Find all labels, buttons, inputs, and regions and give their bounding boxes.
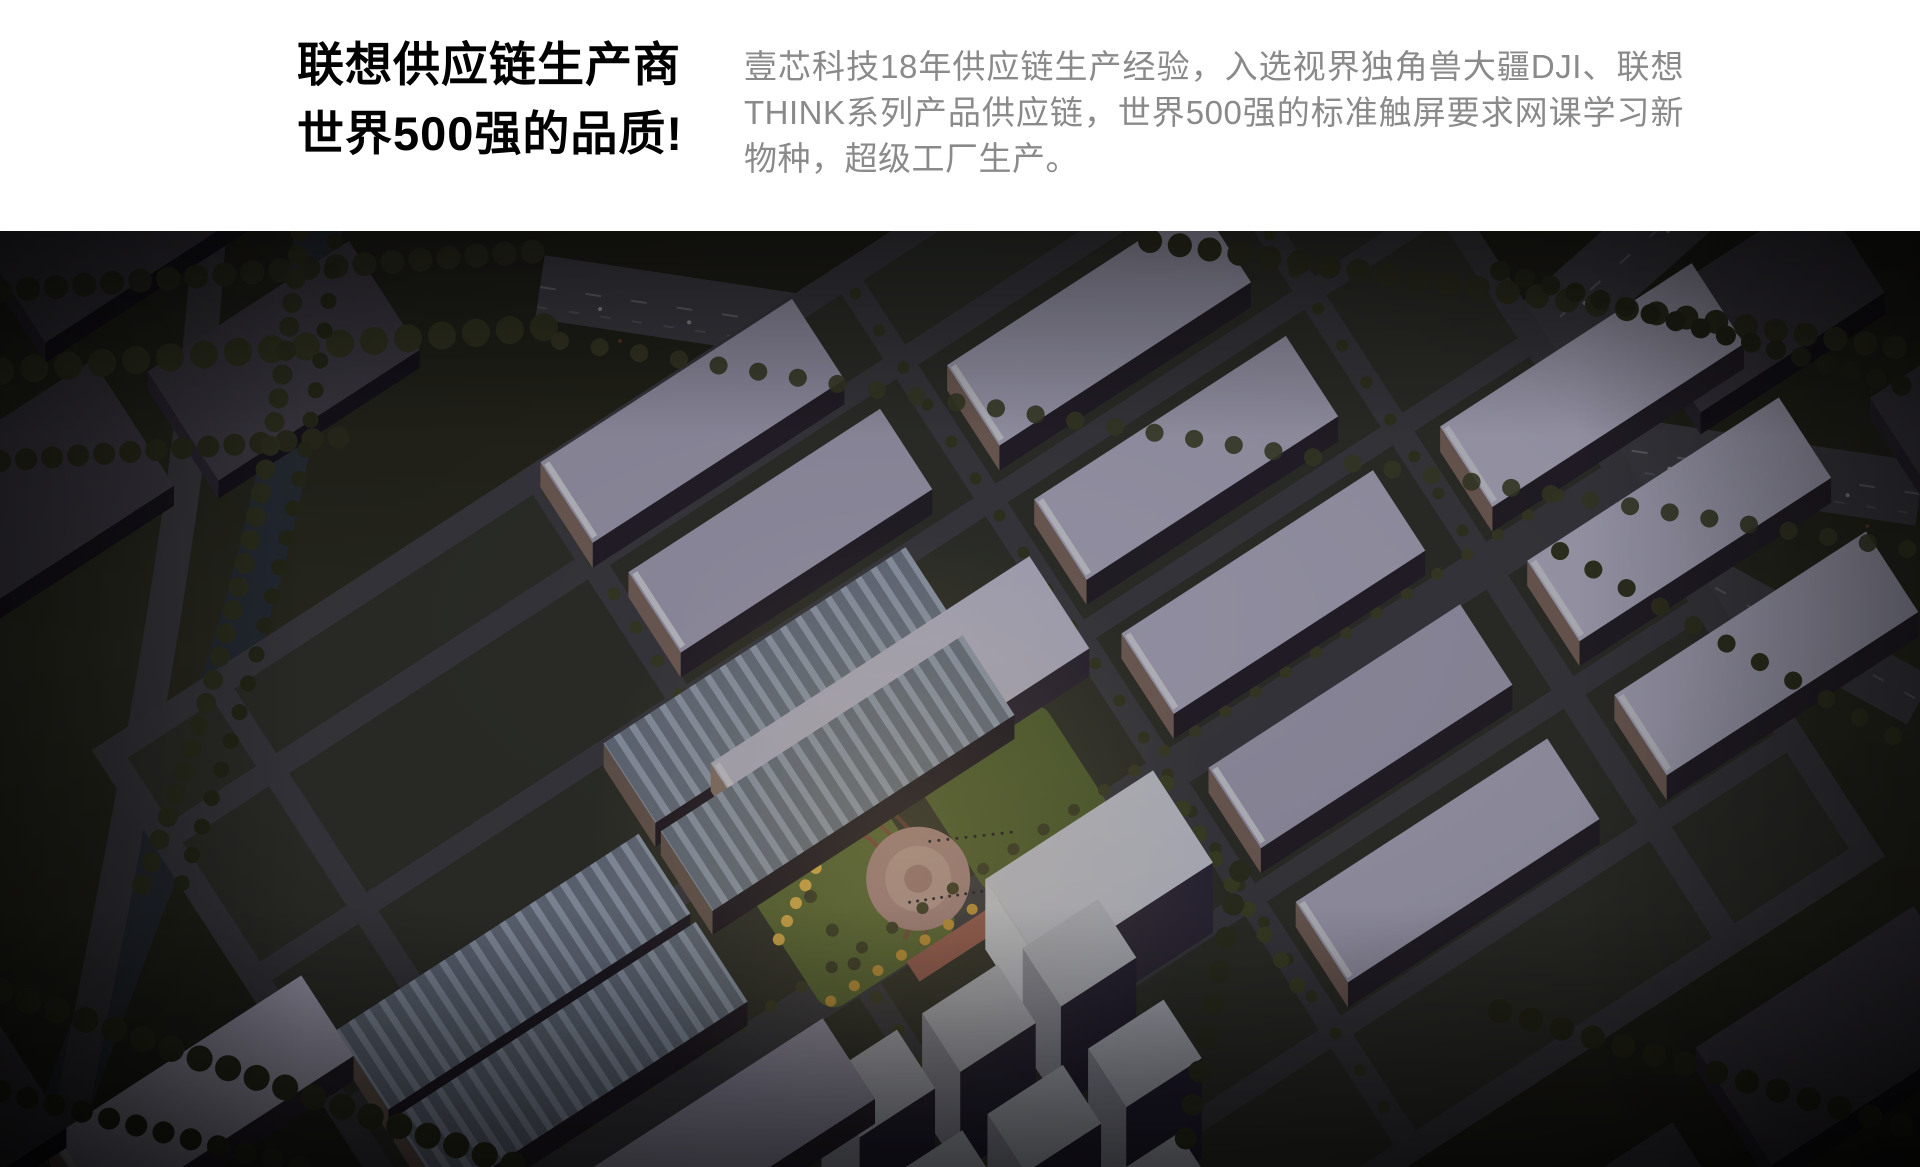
hero-description: 壹芯科技18年供应链生产经验，入选视界独角兽大疆DJI、联想THINK系列产品供… <box>744 44 1684 182</box>
title-line-2: 世界500强的品质! <box>297 99 683 168</box>
hero-header: 联想供应链生产商世界500强的品质! 壹芯科技18年供应链生产经验，入选视界独角… <box>0 0 1920 231</box>
landing-page-section: 联想供应链生产商世界500强的品质! 壹芯科技18年供应链生产经验，入选视界独角… <box>0 0 1920 1167</box>
right-shade <box>0 231 1920 1167</box>
page-title: 联想供应链生产商世界500强的品质! <box>297 30 683 168</box>
aerial-rendering-svg <box>0 231 1920 1167</box>
hero-image <box>0 231 1920 1167</box>
title-line-1: 联想供应链生产商 <box>297 30 683 99</box>
